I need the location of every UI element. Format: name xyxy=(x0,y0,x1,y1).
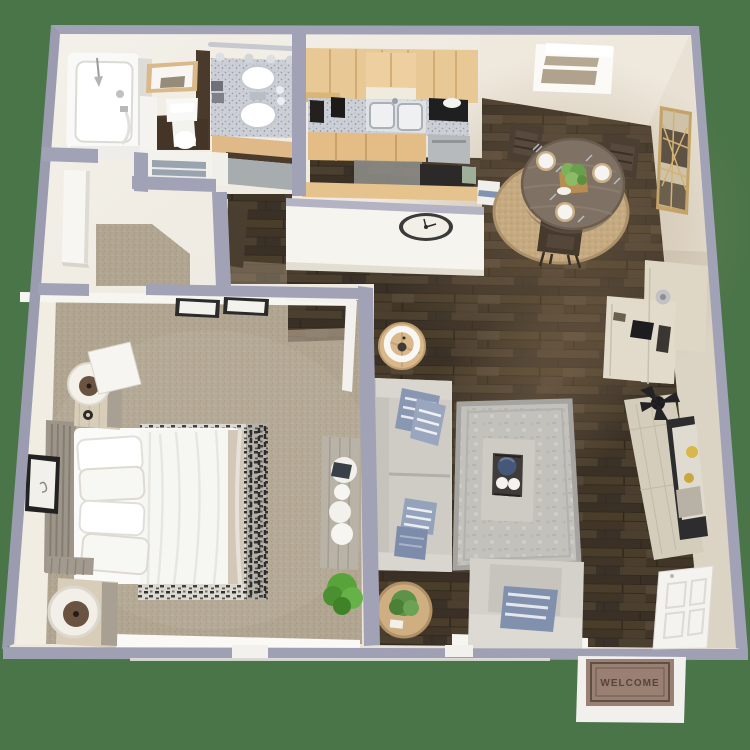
svg-text:WELCOME: WELCOME xyxy=(600,678,659,689)
